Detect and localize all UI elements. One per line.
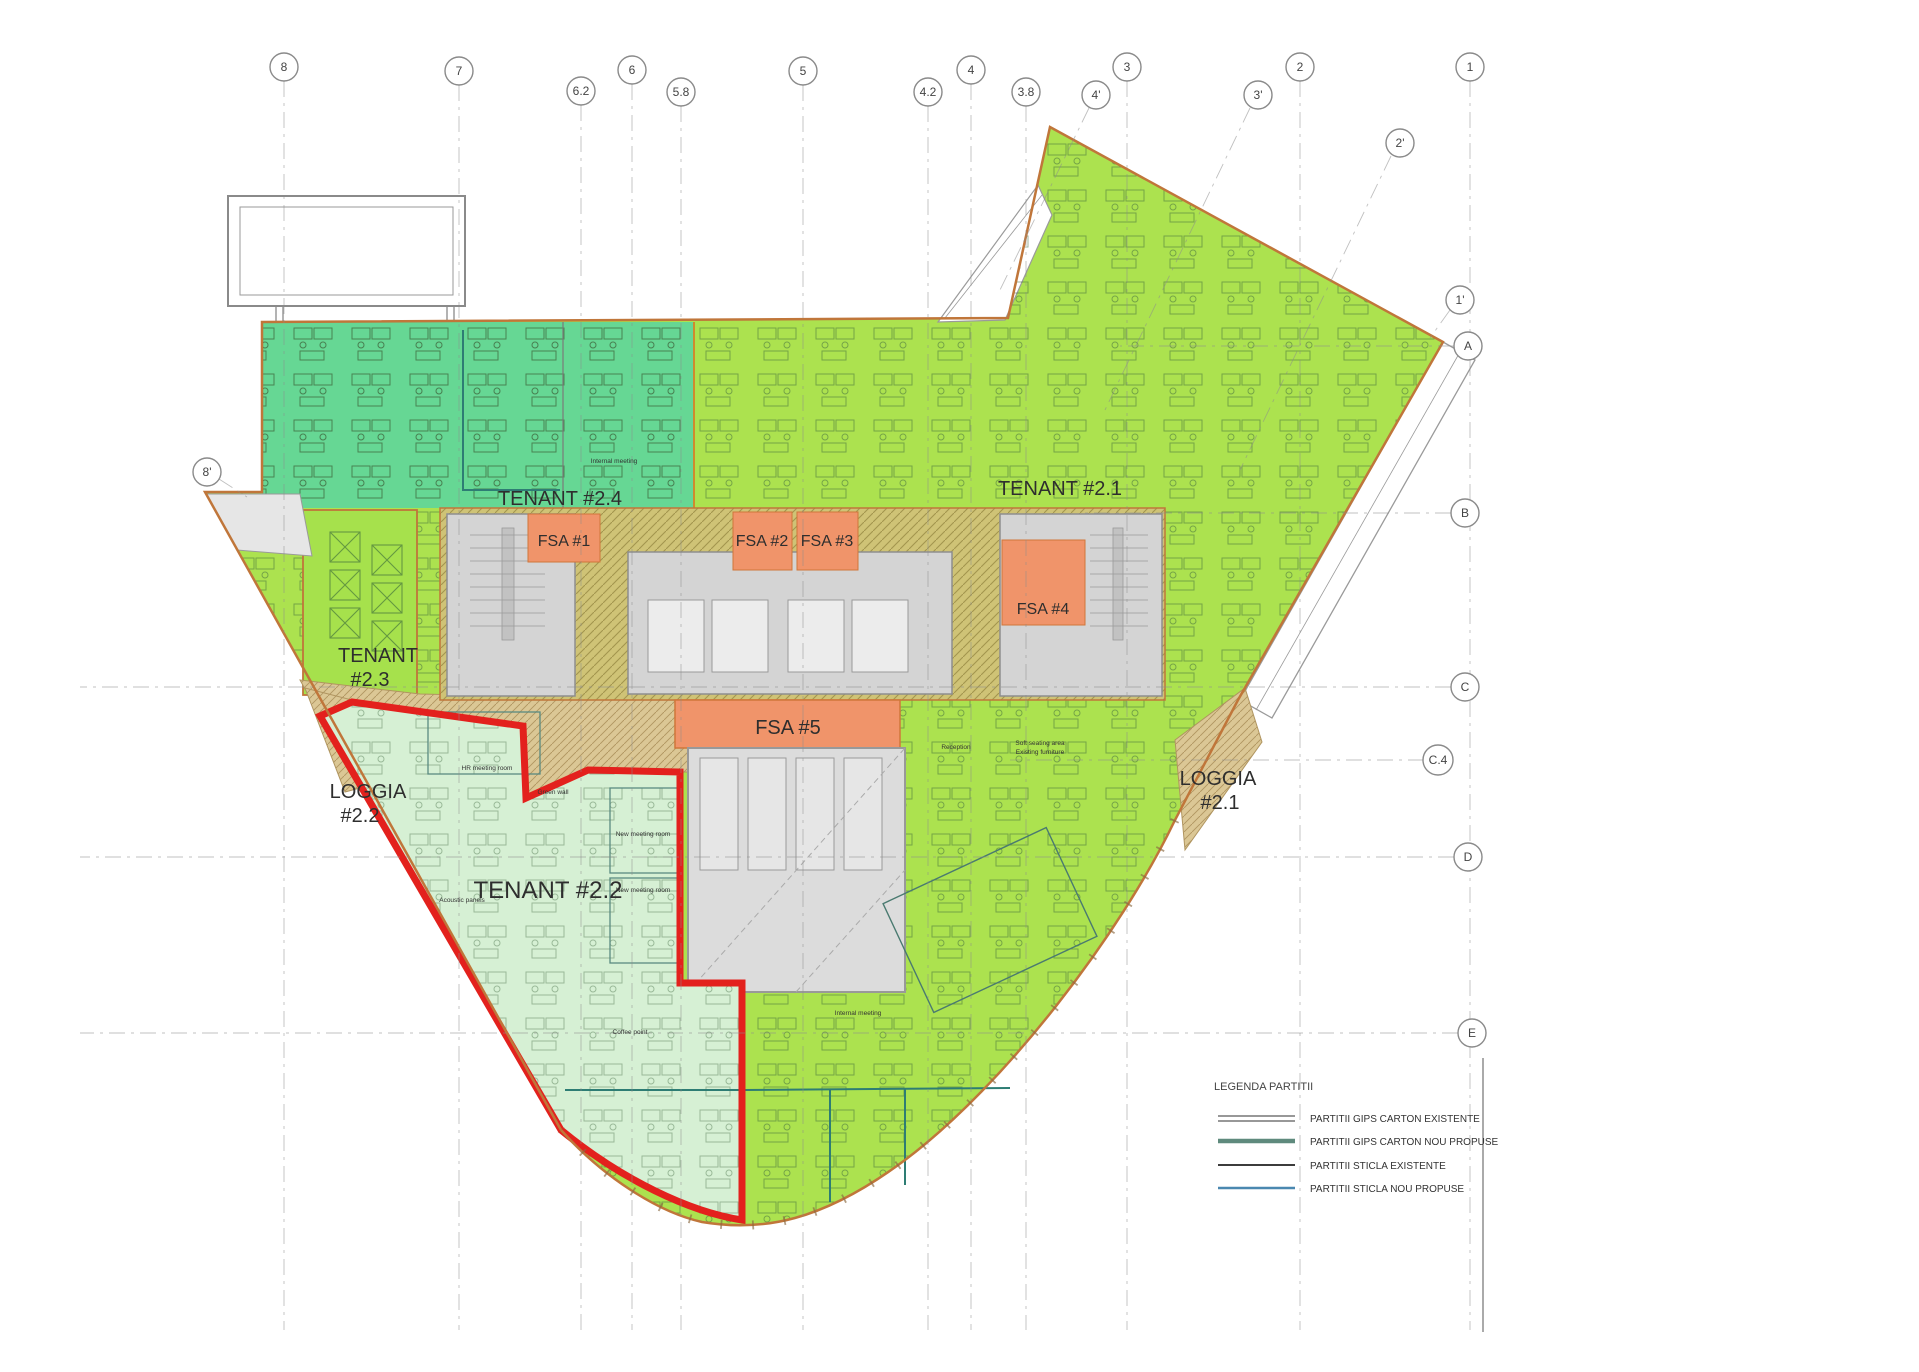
annotation-coffee-point: Coffee point xyxy=(613,1029,648,1036)
label-tenant-2-3-line1: TENANT xyxy=(338,645,418,667)
legend: LEGENDA PARTITII PARTITII GIPS CARTON EX… xyxy=(1214,1081,1499,1195)
label-fsa-5: FSA #5 xyxy=(755,717,821,739)
grid-bubble-C: C xyxy=(1451,673,1479,701)
svg-text:C: C xyxy=(1461,680,1470,694)
grid-bubble-3-prime: 3' xyxy=(1244,81,1272,109)
elevator-core-center xyxy=(628,552,952,694)
label-loggia-2-1-line1: LOGGIA xyxy=(1180,768,1257,790)
label-fsa-1: FSA #1 xyxy=(538,533,591,550)
grid-bubble-4-prime: 4' xyxy=(1082,81,1110,109)
annotation-hr-meeting: HR meeting room xyxy=(462,765,513,772)
grid-bubble-2-prime: 2' xyxy=(1386,129,1414,157)
furniture-texture-teal xyxy=(262,322,694,508)
label-tenant-2-2: TENANT #2.2 xyxy=(474,877,623,904)
svg-text:5.8: 5.8 xyxy=(673,85,690,99)
grid-bubble-1-prime: 1' xyxy=(1446,286,1474,314)
annotation-new-meeting-1: New meeting room xyxy=(616,831,671,838)
label-loggia-2-2-line1: LOGGIA xyxy=(330,781,407,803)
svg-text:6: 6 xyxy=(629,63,636,77)
svg-text:C.4: C.4 xyxy=(1429,753,1448,767)
label-tenant-2-3-line2: #2.3 xyxy=(351,669,390,691)
legend-label-gips-nou: PARTITII GIPS CARTON NOU PROPUSE xyxy=(1310,1137,1499,1148)
grid-line-1-prime xyxy=(1430,310,1450,338)
grid-bubble-6: 6 xyxy=(618,56,646,84)
svg-text:1: 1 xyxy=(1467,60,1474,74)
legend-label-sticla-existenta: PARTITII STICLA EXISTENTE xyxy=(1310,1161,1446,1172)
legend-title: LEGENDA PARTITII xyxy=(1214,1081,1313,1093)
annotation-internal-meeting: Internal meeting xyxy=(591,458,638,465)
annotation-soft-seating-line2: Existing furniture xyxy=(1016,749,1065,756)
grid-bubble-5: 5 xyxy=(789,57,817,85)
grid-bubble-8-prime: 8' xyxy=(193,458,221,486)
grid-bubble-D: D xyxy=(1454,843,1482,871)
svg-text:4.2: 4.2 xyxy=(920,85,937,99)
svg-text:E: E xyxy=(1468,1026,1476,1040)
grid-bubble-5-8: 5.8 xyxy=(667,78,695,106)
atrium xyxy=(688,748,905,992)
grid-bubble-3-8: 3.8 xyxy=(1012,78,1040,106)
svg-text:7: 7 xyxy=(456,64,463,78)
grid-bubble-8: 8 xyxy=(270,53,298,81)
grid-bubble-6-2: 6.2 xyxy=(567,77,595,105)
svg-text:8: 8 xyxy=(281,60,288,74)
annotation-acoustic-panels: Acoustic panels xyxy=(439,897,485,904)
label-fsa-4: FSA #4 xyxy=(1017,601,1070,618)
label-loggia-2-1-line2: #2.1 xyxy=(1201,792,1240,814)
legend-symbol-gips-existente xyxy=(1218,1116,1295,1121)
svg-text:3': 3' xyxy=(1254,88,1263,102)
grid-bubble-4-2: 4.2 xyxy=(914,78,942,106)
grid-bubble-1: 1 xyxy=(1456,53,1484,81)
svg-text:3: 3 xyxy=(1124,60,1131,74)
annotation-soft-seating-line1: Soft seating area xyxy=(1015,740,1065,747)
annotation-green-wall: Green wall xyxy=(537,789,569,796)
svg-text:4': 4' xyxy=(1092,88,1101,102)
label-tenant-2-1: TENANT #2.1 xyxy=(998,478,1122,500)
svg-text:2: 2 xyxy=(1297,60,1304,74)
grid-bubble-C4: C.4 xyxy=(1423,745,1453,775)
svg-text:3.8: 3.8 xyxy=(1018,85,1035,99)
floor-plan-svg: 8 7 6.2 6 5.8 5 4.2 4 3.8 3 2 1 4' 3' 2'… xyxy=(0,0,1919,1372)
floor-plan-page: 8 7 6.2 6 5.8 5 4.2 4 3.8 3 2 1 4' 3' 2'… xyxy=(0,0,1919,1372)
legend-label-gips-existente: PARTITII GIPS CARTON EXISTENTE xyxy=(1310,1114,1480,1125)
svg-text:A: A xyxy=(1464,339,1472,353)
svg-text:B: B xyxy=(1461,506,1469,520)
annotation-new-meeting-2: New meeting room xyxy=(616,887,671,894)
grid-bubble-A: A xyxy=(1454,332,1482,360)
svg-text:5: 5 xyxy=(800,64,807,78)
tenant-2-3-area xyxy=(303,510,417,695)
label-tenant-2-4: TENANT #2.4 xyxy=(498,488,622,510)
svg-text:8': 8' xyxy=(203,465,212,479)
grid-bubble-7: 7 xyxy=(445,57,473,85)
label-fsa-2: FSA #2 xyxy=(736,533,789,550)
annotation-reception: Reception xyxy=(941,744,971,751)
grid-bubble-3: 3 xyxy=(1113,53,1141,81)
grid-bubble-4: 4 xyxy=(957,56,985,84)
building xyxy=(205,127,1475,1225)
label-loggia-2-2-line2: #2.2 xyxy=(341,805,380,827)
grid-bubble-2: 2 xyxy=(1286,53,1314,81)
grid-bubble-B: B xyxy=(1451,499,1479,527)
svg-text:D: D xyxy=(1464,850,1473,864)
svg-text:4: 4 xyxy=(968,63,975,77)
svg-text:1': 1' xyxy=(1456,293,1465,307)
corner-wc-room xyxy=(206,494,312,556)
svg-text:6.2: 6.2 xyxy=(573,84,590,98)
roof-terrace xyxy=(228,196,465,322)
svg-text:2': 2' xyxy=(1396,136,1405,150)
legend-label-sticla-nou: PARTITII STICLA NOU PROPUSE xyxy=(1310,1184,1464,1195)
grid-bubble-E: E xyxy=(1458,1019,1486,1047)
label-fsa-3: FSA #3 xyxy=(801,533,854,550)
annotation-internal-meeting-2: Internal meeting xyxy=(835,1010,882,1017)
